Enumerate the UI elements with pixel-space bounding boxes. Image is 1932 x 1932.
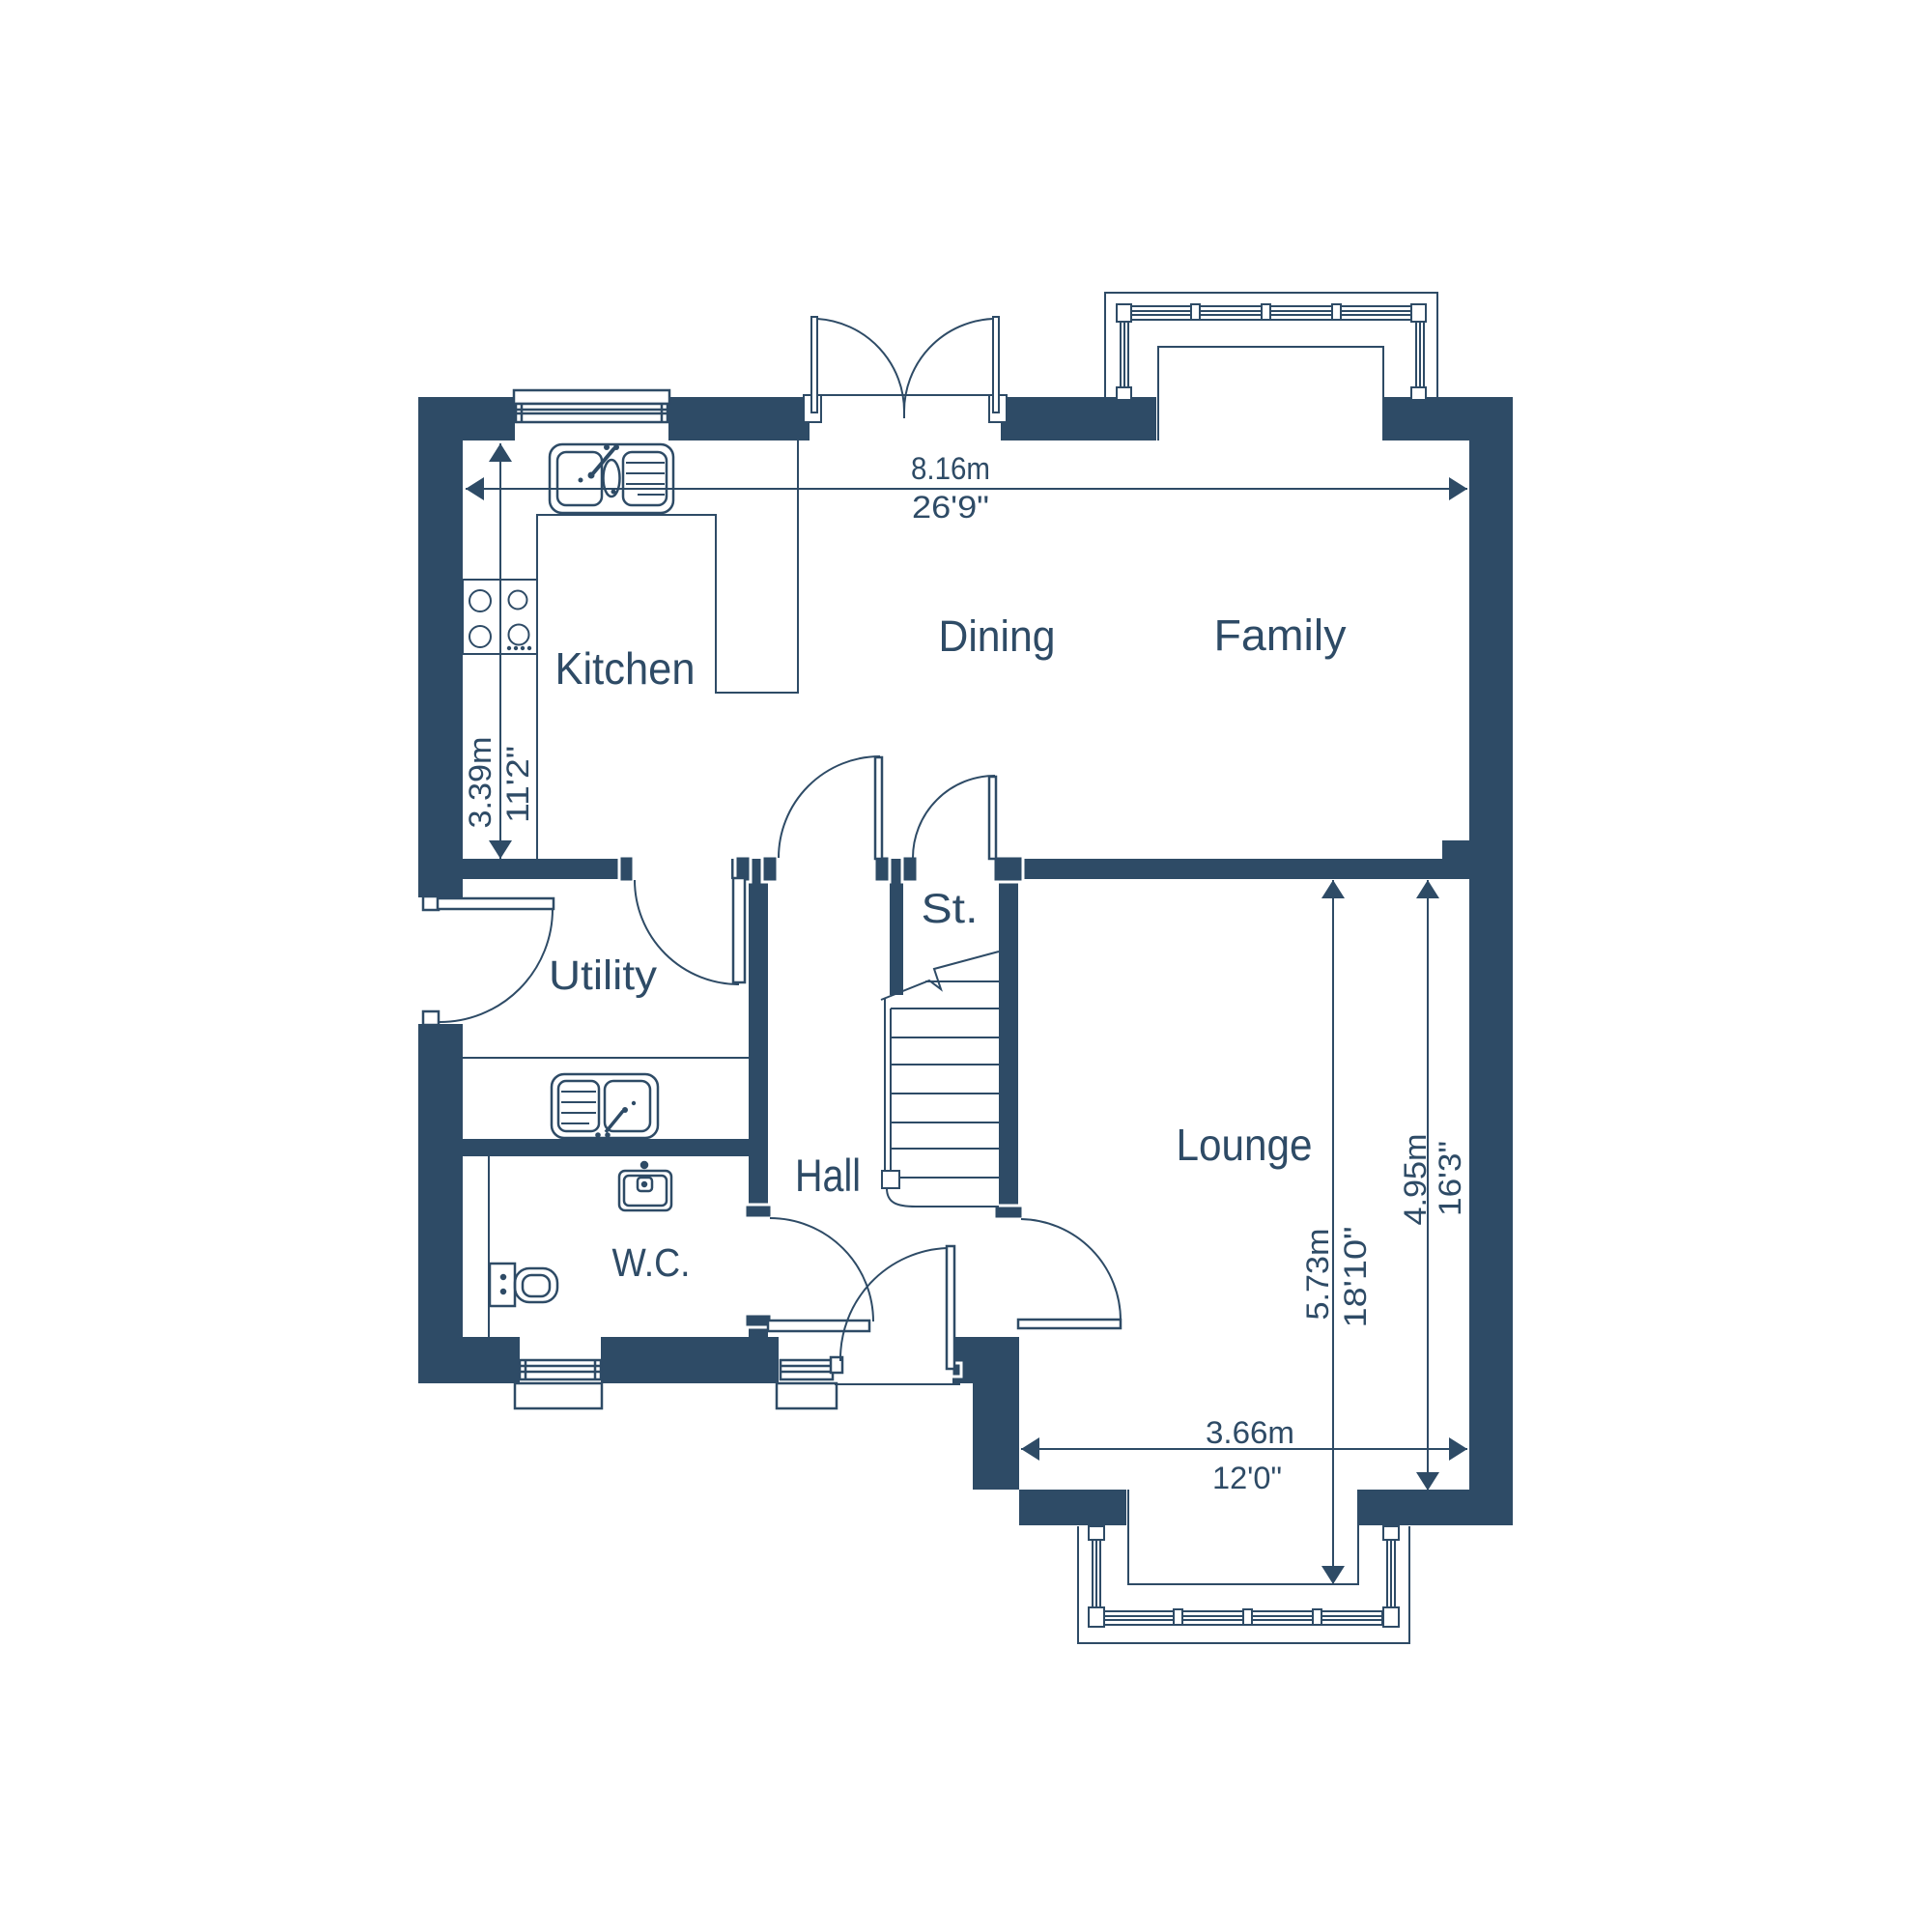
svg-text:3.66m: 3.66m	[1206, 1415, 1294, 1450]
svg-text:Dining: Dining	[939, 611, 1056, 661]
svg-text:8.16m: 8.16m	[911, 451, 990, 486]
svg-text:W.C.: W.C.	[612, 1240, 691, 1285]
svg-text:18'10": 18'10"	[1338, 1227, 1373, 1328]
svg-text:Lounge: Lounge	[1177, 1120, 1313, 1170]
svg-text:3.39m: 3.39m	[463, 737, 497, 829]
svg-text:Kitchen: Kitchen	[555, 643, 696, 694]
svg-text:Hall: Hall	[795, 1150, 861, 1201]
svg-text:11'2": 11'2"	[500, 746, 535, 823]
svg-text:26'9": 26'9"	[912, 490, 989, 525]
svg-text:16'3": 16'3"	[1433, 1141, 1467, 1216]
svg-text:4.95m: 4.95m	[1398, 1134, 1433, 1226]
svg-text:5.73m: 5.73m	[1300, 1229, 1335, 1321]
svg-text:Family: Family	[1214, 611, 1348, 660]
svg-text:Utility: Utility	[549, 952, 658, 999]
svg-text:St.: St.	[922, 886, 979, 932]
svg-text:12'0": 12'0"	[1212, 1461, 1282, 1495]
